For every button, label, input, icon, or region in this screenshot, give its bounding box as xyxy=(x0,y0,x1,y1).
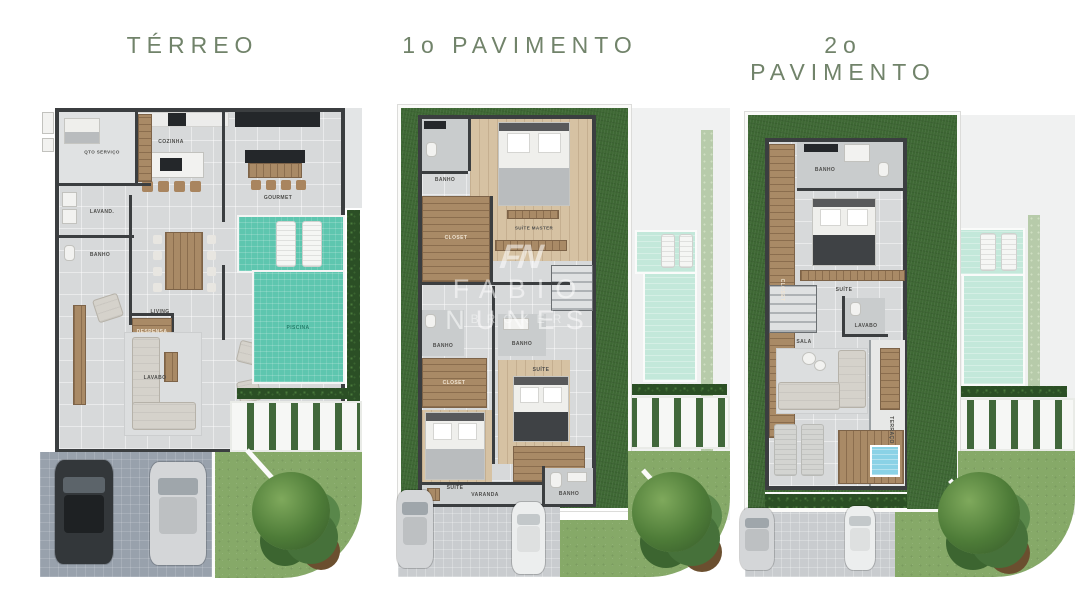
room-label-servico: QTO SERVIÇO xyxy=(84,150,120,155)
wall xyxy=(222,265,225,340)
in-pool-lounger xyxy=(980,233,996,271)
room-label-suite-master: SUÍTE MASTER xyxy=(515,226,553,231)
car-white xyxy=(512,502,545,574)
toilet xyxy=(426,142,437,157)
toilet xyxy=(64,245,75,261)
sink xyxy=(567,472,587,482)
stairs xyxy=(769,285,817,333)
round-table xyxy=(814,360,826,371)
ac-unit xyxy=(42,138,54,152)
room-label-banho: BANHO xyxy=(435,177,455,183)
room-label-lavanderia: LAVAND. xyxy=(90,209,114,215)
dining-chairs xyxy=(153,235,162,244)
wall xyxy=(59,183,151,186)
plan-title-terreo: TÉRREO xyxy=(95,32,290,59)
toilet xyxy=(850,302,861,316)
spa-jacuzzi xyxy=(870,445,900,477)
in-pool-lounger xyxy=(302,221,322,267)
bed-suite xyxy=(812,198,876,266)
wood-walkway xyxy=(800,270,905,281)
wall xyxy=(222,112,225,222)
wall xyxy=(422,171,468,174)
plan-title-2-pavimento: 2o PAVIMENTO xyxy=(738,32,948,86)
wall xyxy=(842,334,888,337)
pantry-closet xyxy=(138,114,152,182)
room-label-suite: SUÍTE xyxy=(447,485,464,491)
gourmet-counter xyxy=(235,112,320,127)
wall xyxy=(842,296,845,336)
lounger xyxy=(801,424,824,476)
car-dark xyxy=(55,460,113,564)
sofa-chaise xyxy=(778,382,840,410)
shower xyxy=(844,144,870,162)
room-label-despensa: DESPENSA xyxy=(137,329,168,335)
sofa-chaise xyxy=(132,402,196,430)
wall xyxy=(797,188,903,191)
terrace-bench xyxy=(880,348,900,410)
hedge xyxy=(617,384,727,395)
pergola xyxy=(230,401,362,452)
washer xyxy=(62,192,77,207)
in-pool-lounger xyxy=(1001,233,1017,271)
pool-label: PISCINA xyxy=(286,325,309,331)
bed-suite xyxy=(425,412,485,480)
sofa xyxy=(838,350,866,408)
car-white xyxy=(845,506,875,570)
bed-suite-master xyxy=(498,122,570,206)
wall xyxy=(542,466,545,507)
room-label-living: LIVING xyxy=(150,309,169,315)
floorplan-sheet: TÉRREO 1o PAVIMENTO 2o PAVIMENTO COZINHA… xyxy=(0,0,1080,608)
plan-2-pavimento: BANHO CLOSET SUÍTE LAVABO SALA TERRAÇO xyxy=(740,100,1075,592)
room-label-lavabo: LAVABO xyxy=(144,375,167,381)
room-label-banho: BANHO xyxy=(559,491,579,497)
wall xyxy=(59,235,134,238)
pergola xyxy=(950,398,1075,451)
watermark-name: FABIO NUNES xyxy=(385,274,655,336)
gourmet-table xyxy=(248,163,302,178)
bed-suite xyxy=(513,376,569,442)
room-label-closet: CLOSET xyxy=(445,235,468,241)
tree xyxy=(632,472,712,552)
room-label-banho: BANHO xyxy=(90,252,110,258)
room-label-banho: BANHO xyxy=(433,343,453,349)
bed-bench xyxy=(507,210,559,219)
car-silver xyxy=(150,462,206,565)
car-silver xyxy=(740,508,774,570)
plan-terreo: COZINHA GOURMET QTO SERVIÇO LAVAND. BANH… xyxy=(40,100,362,592)
dining-table xyxy=(165,232,203,290)
toilet xyxy=(550,472,562,488)
garden xyxy=(560,520,628,577)
lounger xyxy=(774,424,797,476)
hedge xyxy=(955,386,1067,397)
wall xyxy=(468,119,471,171)
tree xyxy=(938,472,1020,554)
room-label-suite: SUÍTE xyxy=(836,287,853,293)
room-label-sala: SALA xyxy=(796,339,811,345)
toilet xyxy=(878,162,889,177)
room-label-closet: CLOSET xyxy=(779,279,785,302)
curb xyxy=(212,452,215,578)
room-label-cozinha: COZINHA xyxy=(158,139,184,145)
plan-1-pavimento: SUÍTE MASTER BANHO CLOSET BANHO BANHO CL… xyxy=(395,100,730,592)
gourmet-stools xyxy=(251,180,261,190)
car-silver xyxy=(397,490,433,568)
room-label-terraco: TERRAÇO xyxy=(888,416,894,444)
room-label-banho: BANHO xyxy=(815,167,835,173)
kitchen-sink xyxy=(168,113,186,126)
wall xyxy=(129,195,132,325)
in-pool-lounger xyxy=(679,234,693,268)
room-label-banho: BANHO xyxy=(512,341,532,347)
room-label-closet: CLOSET xyxy=(443,380,466,386)
side-walkway xyxy=(345,108,362,208)
in-pool-lounger xyxy=(276,221,296,267)
hedge xyxy=(237,388,349,399)
gourmet-island xyxy=(245,150,305,163)
hedge xyxy=(765,492,907,510)
tree xyxy=(252,472,330,550)
in-pool-lounger xyxy=(661,234,675,268)
fn-monogram-logo: FN xyxy=(487,238,552,277)
room-label-gourmet: GOURMET xyxy=(264,195,292,201)
ac-unit xyxy=(42,112,54,134)
room-label-lavabo: LAVABO xyxy=(855,323,878,329)
pool-faded xyxy=(962,274,1025,386)
vanity xyxy=(424,121,446,129)
plan-title-1-pavimento: 1o PAVIMENTO xyxy=(400,32,640,59)
room-label-suite: SUÍTE xyxy=(533,367,550,373)
dryer xyxy=(62,209,77,224)
service-bed xyxy=(64,118,100,144)
vanity xyxy=(804,144,838,152)
hedge-faded xyxy=(1028,215,1040,395)
room-label-varanda: VARANDA xyxy=(471,492,498,498)
watermark-role: BROKER xyxy=(470,312,570,326)
cooktop xyxy=(160,158,182,171)
tv-sideboard xyxy=(73,305,86,405)
